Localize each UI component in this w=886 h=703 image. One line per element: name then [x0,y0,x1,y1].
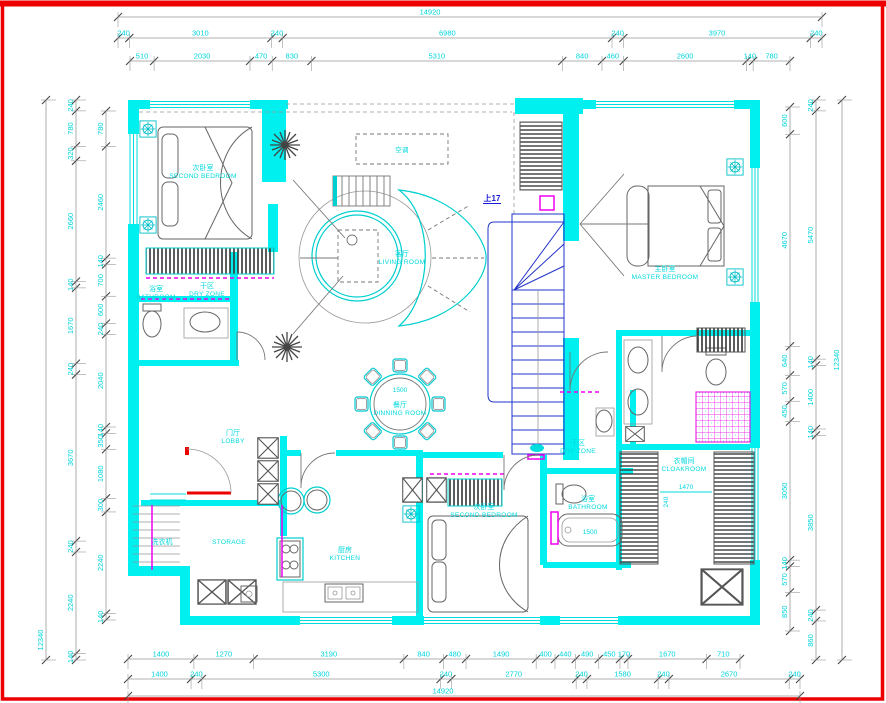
dim-value: 780 [765,52,778,61]
dim-value: 140 [806,426,815,439]
wardrobe-left [620,452,658,564]
shower-tiled [696,392,750,442]
shaft-x [198,580,226,604]
door-arc [237,332,265,360]
sink [596,410,612,432]
bathroom-1 [141,299,265,360]
window-top-left [150,100,250,109]
magenta-box [540,196,554,210]
dim-value: 5470 [806,227,815,244]
dim-value: 1080 [96,465,105,482]
dim-value: 600 [780,114,789,127]
bed-1 [158,127,252,239]
dim-value: 700 [96,274,105,287]
dim-value: 460 [607,52,620,61]
pillow [432,520,446,560]
dim-chain-right-axes: 240547014014001403850240860 [806,96,826,664]
cloakroom-label-zh: 衣帽间 [674,456,695,465]
shaft-x [258,438,278,458]
dim-value: 140 [806,356,815,369]
dim-value: 510 [136,52,149,61]
second-bedroom-1 [140,121,274,278]
door-arc [301,453,335,488]
dim-value: 140 [66,278,75,291]
window-bottom-bath [560,616,618,625]
dim-value: 14920 [420,8,441,17]
dim-value: 600 [96,304,105,317]
pillow [162,134,178,178]
dining-label-zh: 餐厅 [393,400,407,409]
master-bathroom [624,328,750,442]
floor-plan-svg: 14920 240301024069802403970240 510203047… [0,0,886,703]
dim-value: 140 [780,557,789,570]
window-bottom-kitchen [300,616,392,625]
dim-value: 2240 [66,594,75,611]
shaft-x [403,478,423,502]
sight-lines [293,180,345,334]
lounge-ring [312,211,402,301]
dim-value: 1670 [66,317,75,334]
kitchen-label-zh: 厨房 [338,545,352,554]
dim-value: 240 [788,670,801,679]
dim-value: 2460 [96,194,105,211]
dim-value: 860 [806,634,815,647]
toilet-bowl [706,359,726,385]
dim-value: 240 [806,99,815,112]
dry-zone-2-label-en: DRY ZONE [560,448,596,455]
dim-chain-top-overall: 14920 [114,8,826,28]
dim-value: 2670 [721,670,738,679]
ceiling-symbol [140,217,156,233]
bed-master [648,186,724,266]
dining-table-dim: 1500 [393,387,408,394]
dim-value: 3970 [709,29,726,38]
dim-value: 840 [576,52,589,61]
dim-chain-top-detail: 510203047083053108404602600140780 [126,52,794,72]
dim-value: 450 [780,405,789,418]
toilet-bowl [143,311,161,337]
laundry-hatch [133,506,180,562]
window-top-right [596,100,734,109]
dim-value: 710 [717,650,730,659]
lobby-label-en: LOBBY [221,438,245,445]
shaft-x [258,461,278,481]
dim-value: 3050 [780,483,789,500]
cloakroom [620,452,754,605]
dim-value: 470 [255,52,268,61]
dim-value: 240 [440,670,453,679]
wardrobe-right [714,452,754,564]
shaft-x [702,569,743,604]
second-bedroom-1-label-en: SECOND BEDROOM [169,173,236,180]
dim-value: 240 [96,323,105,336]
storage-room [133,505,282,604]
dry-zone-2-label-zh: 干区 [571,439,585,447]
dim-value: 3670 [66,449,75,466]
second-bedroom-1-label-zh: 次卧室 [193,163,214,172]
bathroom-2-label-en: BATHROOM [568,504,607,511]
dim-chain-bottom-detail: 1400127031908404801490400440490450170167… [124,650,744,670]
dim-chain-right-detail: 60046706405704503050140570850 [780,103,800,635]
dim-value: 2240 [96,554,105,571]
dim-value: 3010 [192,29,209,38]
cloakroom-label-en: CLOAKROOM [662,466,707,473]
dim-value: 1490 [493,650,510,659]
dim-value: 240 [66,363,75,376]
dim-chain-top-axes: 240301024069802403970240 [114,29,826,49]
ceiling-symbol [727,269,743,285]
living-room-label-zh: 客厅 [395,249,409,258]
dim-value: 1270 [215,650,232,659]
dim-value: 3850 [806,514,815,531]
toilet-tank [143,304,161,311]
master-bedroom-label-zh: 主卧室 [655,264,676,273]
view-cone [580,174,648,276]
shaft-x [626,427,645,442]
dim-value: 2040 [96,372,105,389]
dim-value: 170 [618,650,631,659]
dim-value: 240 [66,99,75,112]
window-bottom-bedroom [424,616,540,625]
basin-ring [304,487,330,513]
fire-table [338,230,378,282]
dim-value: 640 [780,355,789,368]
dry-zone-1-label-zh: 干区 [200,282,214,290]
dim-value: 480 [448,650,461,659]
dim-value: 850 [780,605,789,618]
dim-value: 12340 [36,630,45,651]
cloakroom-width-dim: 1470 [679,484,694,491]
dim-value: 570 [780,573,789,586]
wardrobe-hatch [146,248,274,274]
dim-value: 830 [286,52,299,61]
dim-chain-left-detail: 7802460140700600240204014035010803002240… [96,107,116,624]
dim-chain-right-overall: 12340 [832,96,852,664]
dim-value: 240 [611,29,624,38]
stair-up-label: 上17 [484,193,501,203]
dim-value: 1400 [806,389,815,406]
dim-value: 140 [96,255,105,268]
dim-value: 1400 [153,650,170,659]
door-arc [662,336,698,372]
stove-base [277,538,303,580]
bathroom-2-label-zh: 浴室 [581,494,595,503]
shaft-x [228,580,256,604]
ac-label: 空调 [395,145,409,154]
dim-value: 1580 [614,670,631,679]
stair-planter-hatch [520,122,562,190]
dining-label-en: DINNING ROOM [373,410,426,417]
second-bedroom-2-label-zh: 次卧室 [474,502,495,511]
basin [307,490,327,510]
shaft-x [427,478,447,502]
dim-value: 2770 [505,670,522,679]
counter [283,582,418,612]
entry-threshold [150,494,186,500]
bed-2 [428,516,528,612]
dim-value: 440 [559,650,572,659]
stair-handrail [488,222,512,402]
dim-value: 240 [657,670,670,679]
cabinet-hatch [697,328,745,352]
living-room [139,104,515,362]
plant-icon [272,332,302,362]
dim-value: 240 [66,540,75,553]
dim-value: 450 [603,650,616,659]
cloakroom-depth-dim: 240 [663,496,670,507]
living-room-label-en: LIVING ROOM [379,259,426,266]
dim-value: 6980 [439,29,456,38]
ceiling-symbol [727,159,743,175]
dim-value: 4670 [780,232,789,249]
pillow [432,562,446,602]
window-master [750,168,760,302]
dim-value: 1670 [659,650,676,659]
dim-chain-left-overall: 12340 [36,96,56,664]
dim-value: 14920 [433,687,454,696]
lobby-label-zh: 门厅 [226,428,240,437]
storage-label: STORAGE [212,539,246,546]
dim-value: 300 [96,499,105,512]
dim-value: 780 [96,122,105,135]
dim-value: 12340 [832,350,841,371]
stair-arrow [530,444,544,452]
plant-icon [270,130,300,160]
dim-value: 240 [117,29,130,38]
dim-chain-left-axes: 2407803202660140167024036702402240140 [66,96,86,664]
bed-blanket [500,516,529,612]
pillow [162,182,178,226]
window-left [128,134,139,224]
entry-door-arc [187,449,231,493]
bed-blanket [700,186,724,266]
wardrobe-hatch [448,479,502,506]
dim-value: 240 [271,29,284,38]
dim-value: 240 [575,670,588,679]
dim-value: 780 [66,122,75,135]
ceiling-symbol [140,121,156,137]
kitchen-label-en: KITCHEN [330,555,361,562]
second-bedroom-2-label-en: SECOND BEDROOM [450,512,517,519]
sink [628,347,648,373]
dim-value: 400 [539,650,552,659]
dim-chain-bottom-axes: 14002405300240277024015802402670240 [124,670,804,690]
floor-plan-canvas: 14920 240301024069802403970240 510203047… [0,0,886,703]
dim-value: 140 [66,651,75,664]
dim-value: 490 [581,650,594,659]
dim-value: 140 [96,424,105,437]
dim-value: 140 [744,52,757,61]
bathroom-1-label-en: BATHROOM [136,294,175,301]
dim-value: 2600 [677,52,694,61]
dim-value: 140 [96,611,105,624]
pillow [708,228,721,261]
vanity-counter [624,340,652,424]
lounge-ring-inner [316,215,398,297]
staircase [488,112,564,459]
dim-value: 2030 [194,52,211,61]
bed-blanket [205,127,252,239]
entry-door-jamb [185,447,189,455]
dim-value: 240 [810,29,823,38]
dim-value: 240 [190,670,203,679]
master-bedroom-label-en: MASTER BEDROOM [632,274,699,281]
dim-value: 240 [806,609,815,622]
dry-zone-1-label-en: DRY ZONE [189,291,225,298]
laundry-label: 洗衣机 [152,537,173,546]
dim-value: 3190 [320,650,337,659]
bathroom-1-label-zh: 浴室 [149,284,163,293]
dim-value: 5310 [429,52,446,61]
shower-screen [551,512,558,544]
dim-value: 570 [780,382,789,395]
lobby [150,438,278,504]
dim-value: 2660 [66,213,75,230]
dim-value: 350 [96,435,105,448]
door-arc [504,455,539,490]
bench [627,186,649,266]
kitchen [277,453,418,612]
dim-value: 5300 [313,670,330,679]
dim-value: 840 [417,650,430,659]
drain [565,527,571,533]
fire-table-burner [347,235,357,245]
dim-value: 320 [66,147,75,160]
sofa-seams [428,205,484,312]
shaft-x [258,484,278,504]
sink [190,312,220,332]
sunken-circle [299,191,431,323]
second-bedroom-2 [403,455,539,612]
bathtub-dim: 1500 [583,529,598,536]
dim-value: 1400 [151,670,168,679]
